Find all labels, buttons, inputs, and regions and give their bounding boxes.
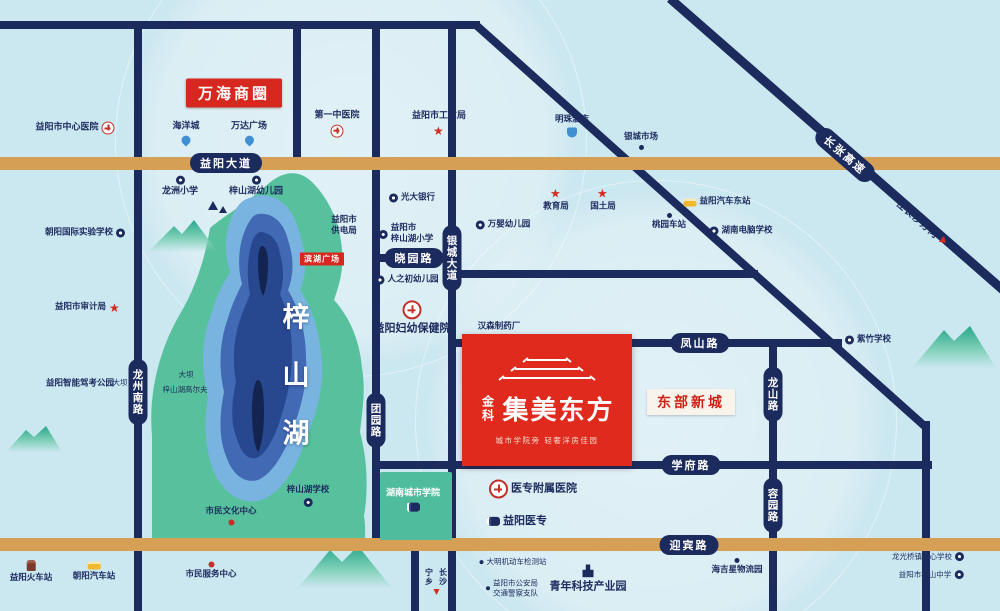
road-label: 容园路 — [764, 478, 783, 533]
poi: 益阳市工信局 — [412, 111, 466, 137]
poi-label: 人之初幼儿园 — [387, 274, 438, 285]
poi: 青年科技产业园 — [550, 564, 627, 593]
poi: 大坝 — [179, 370, 194, 380]
poi: 大坝 — [113, 378, 128, 388]
lake-name-char: 湖 — [283, 412, 310, 451]
dot-icon — [638, 145, 643, 150]
poi: 龙洲小学 — [162, 176, 198, 199]
star-icon — [433, 125, 445, 137]
poi: 益阳妇幼保健院 — [374, 300, 451, 335]
poi: 紫竹学校 — [845, 334, 891, 345]
poi-label: 益阳市 梓山湖小学 — [391, 223, 434, 245]
poi-label: 益阳汽车东站 — [699, 196, 750, 207]
project-logo-box: 金科 集美东方 城市学院旁 轻奢洋房佳园 — [462, 334, 632, 466]
road-label: 益阳大道 — [190, 153, 262, 173]
poi: 银城市场 — [624, 132, 658, 150]
poi: 大明机动车检测站 — [480, 557, 547, 567]
lakeside-plaza-label: 滨湖广场 — [300, 253, 344, 266]
poi-label: 益阳市中心医院 — [35, 122, 98, 134]
poi: 梓山湖幼儿园 — [229, 176, 283, 199]
poi-label: 益阳市梓山中学 — [899, 570, 952, 580]
poi-label: 市民服务中心 — [185, 569, 236, 580]
poi: 梓山湖高尔夫 — [163, 385, 208, 395]
road-label: 团园路 — [367, 393, 386, 448]
poi: 益阳市中心医院 — [35, 122, 114, 135]
poi-label: 市民文化中心 — [205, 506, 256, 517]
poi-label: 益阳市公安局 交通警察支队 — [493, 578, 538, 598]
poi-label: 第一中医院 — [314, 111, 359, 123]
poi: 万婴幼儿园 — [476, 219, 531, 230]
poi-label: 益阳市工信局 — [412, 111, 466, 123]
drop-icon — [180, 133, 193, 146]
poi: 益阳医专 — [487, 514, 547, 528]
lake-name-char: 梓 — [283, 296, 310, 335]
poi-label: 万达广场 — [231, 122, 267, 134]
poi-label: 医专附属医院 — [511, 482, 577, 496]
poi: 朝阳国际实验学校 — [45, 227, 125, 238]
poi: 益阳智能驾考公园 — [46, 378, 114, 389]
poi-label: 万婴幼儿园 — [488, 219, 531, 230]
road-label: 龙山路 — [764, 367, 783, 422]
poi-label: 龙光桥镇中心学校 — [892, 552, 952, 562]
poi: 万达广场 — [231, 122, 267, 145]
school-icon — [116, 228, 125, 237]
school-icon — [379, 230, 388, 239]
poi-label: 海洋城 — [172, 122, 199, 134]
direction-ningxiang: 宁乡 — [424, 568, 435, 586]
school-icon — [303, 498, 312, 507]
road-mid-east — [452, 270, 758, 278]
poi: 益阳市 梓山湖小学 — [379, 223, 434, 245]
poi-label: 银城市场 — [624, 132, 658, 143]
tree-icon — [208, 201, 227, 213]
road-north — [0, 21, 480, 29]
direction-sign: 宁乡 长沙 — [424, 568, 449, 586]
poi-label: 龙洲小学 — [162, 187, 198, 199]
bus-icon — [87, 561, 100, 569]
dot-icon — [666, 213, 671, 218]
bullet-icon — [486, 586, 490, 590]
poi-label: 大坝 — [113, 378, 128, 388]
poi-label: 益阳智能驾考公园 — [46, 378, 114, 389]
dot-icon — [734, 558, 739, 563]
school-icon — [954, 571, 963, 580]
school-icon — [375, 275, 384, 284]
road-longzhou-south — [134, 21, 142, 611]
poi-label: 朝阳汽车站 — [73, 571, 116, 582]
poi: 市民服务中心 — [185, 561, 236, 580]
school-icon — [251, 176, 260, 185]
school-icon — [845, 335, 854, 344]
poi: 市民文化中心 — [205, 506, 256, 525]
poi: 益阳市梓山中学 — [899, 570, 964, 580]
eaves-icon — [487, 354, 607, 386]
poi: 海吉星物流园 — [711, 558, 762, 576]
school-icon — [709, 226, 718, 235]
poi-label: 汉森制药厂 — [478, 321, 521, 332]
road-label: 学府路 — [662, 455, 721, 475]
poi-label: 梓山湖学校 — [287, 485, 330, 496]
road-label: 迎宾路 — [660, 535, 719, 555]
poi: 益阳市 供电局 — [331, 215, 357, 237]
star-icon — [597, 187, 609, 199]
star-icon — [109, 302, 121, 314]
poi: 龙光桥镇中心学校 — [892, 552, 964, 562]
poi: 益阳汽车东站 — [683, 196, 750, 207]
drop-icon — [243, 133, 256, 146]
poi-label: 明珠酒店 — [555, 114, 589, 125]
poi-label: 青年科技产业园 — [550, 579, 627, 593]
book-icon — [406, 502, 419, 511]
poi-label: 教育局 — [543, 201, 569, 212]
poi-label: 大明机动车检测站 — [487, 557, 547, 567]
bus-icon — [683, 198, 696, 206]
project-name: 集美东方 — [502, 390, 614, 427]
book-icon — [487, 516, 500, 525]
poi: 海洋城 — [172, 122, 199, 145]
east-new-city-label: 东部新城 — [647, 389, 735, 415]
road-xuefu — [372, 461, 932, 469]
mountain — [912, 326, 996, 368]
dotred-icon — [208, 561, 214, 567]
poi-label: 梓山湖高尔夫 — [163, 385, 208, 395]
poi: 桃园车站 — [652, 213, 686, 231]
poi-label: 光大银行 — [401, 192, 435, 203]
school-icon — [476, 220, 485, 229]
poi-label: 益阳妇幼保健院 — [374, 321, 451, 335]
star-icon — [550, 187, 562, 199]
poi-label: 桃园车站 — [652, 220, 686, 231]
poi: 湖南城市学院 — [386, 489, 440, 512]
wanhai-business-district-label: 万海商圈 — [186, 79, 282, 108]
poi: 湖南电脑学校 — [709, 225, 772, 236]
poi: 第一中医院 — [314, 111, 359, 138]
school-icon — [955, 553, 964, 562]
poi-label: 大坝 — [179, 370, 194, 380]
mountain — [6, 426, 62, 452]
poi: 医专附属医院 — [489, 480, 577, 499]
road-yingbin — [0, 538, 1000, 551]
poi-label: 梓山湖幼儿园 — [229, 187, 283, 199]
mountain — [148, 220, 218, 252]
road-label: 银城大道 — [443, 225, 462, 291]
road-vertical-north — [293, 21, 301, 169]
hospital-lg-icon — [403, 300, 422, 319]
direction-changsha: 长沙 — [438, 568, 449, 586]
poi-label: 益阳医专 — [503, 514, 547, 528]
poi-label: 益阳市 供电局 — [331, 215, 357, 237]
poi: 益阳市审计局 — [55, 302, 121, 314]
poi: 明珠酒店 — [555, 114, 589, 137]
poi: 益阳市公安局 交通警察支队 — [486, 578, 538, 598]
train-icon — [26, 560, 35, 571]
hospital-icon — [330, 124, 343, 137]
dotred-icon — [228, 520, 234, 526]
poi-label: 湖南电脑学校 — [721, 225, 772, 236]
project-tagline: 城市学院旁 轻奢洋房佳园 — [496, 435, 599, 446]
mountain — [298, 546, 392, 588]
poi: 益阳火车站 — [10, 560, 53, 584]
brand-name: 金科 — [479, 395, 496, 423]
road-label: 晓园路 — [385, 248, 444, 268]
poi: 国土局 — [590, 187, 616, 212]
poi: 教育局 — [543, 187, 569, 212]
hotel-icon — [567, 128, 577, 138]
poi-label: 朝阳国际实验学校 — [45, 227, 113, 238]
poi-label: 益阳市审计局 — [55, 302, 106, 313]
hospital-icon — [102, 122, 115, 135]
hospital-lg-icon — [489, 480, 508, 499]
poi-label: 国土局 — [590, 201, 616, 212]
poi-label: 海吉星物流园 — [711, 565, 762, 576]
bank-icon — [389, 193, 398, 202]
poi-label: 紫竹学校 — [857, 334, 891, 345]
map-canvas: 万海商圈 滨湖广场 东部新城 金科 集美东方 城市学院旁 轻奢洋房佳园 宁乡 长… — [0, 0, 1000, 611]
bullet-icon — [480, 560, 484, 564]
poi-label: 湖南城市学院 — [386, 489, 440, 501]
road-label: 凤山路 — [671, 333, 730, 353]
road-label: 龙州南路 — [129, 359, 148, 425]
poi: 梓山湖学校 — [287, 485, 330, 507]
school-icon — [175, 176, 184, 185]
poi: 光大银行 — [389, 192, 435, 203]
poi: 汉森制药厂 — [478, 321, 521, 332]
poi-label: 益阳火车站 — [10, 573, 53, 584]
road-vertical-east — [922, 421, 930, 611]
poi: 朝阳汽车站 — [73, 561, 116, 582]
poi: 人之初幼儿园 — [375, 274, 438, 285]
lake-name-char: 山 — [283, 354, 310, 393]
project-name-line: 金科 集美东方 — [479, 390, 614, 427]
building-icon — [583, 564, 594, 577]
